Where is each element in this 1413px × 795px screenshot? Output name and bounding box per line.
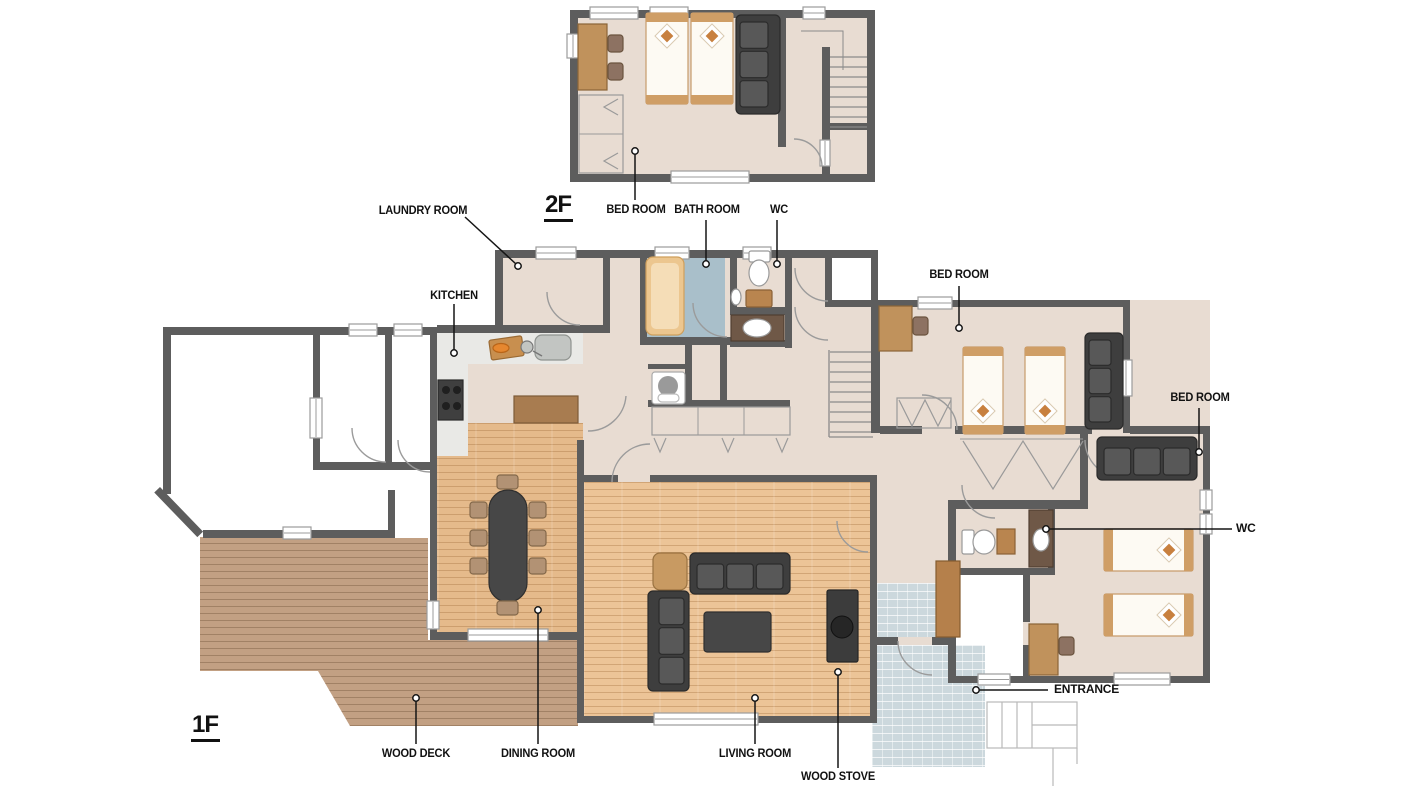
wc-cabinet	[997, 529, 1015, 554]
sofa-cushion	[1089, 368, 1111, 393]
wall	[825, 250, 832, 307]
toilet-tank	[962, 530, 974, 554]
wall	[1130, 426, 1210, 434]
wall	[867, 10, 875, 182]
dining-chair	[529, 530, 546, 546]
kitchen-island	[514, 396, 578, 423]
leader-dot	[703, 261, 709, 267]
door-arc	[837, 521, 868, 552]
wall	[873, 637, 898, 645]
cooktop-burner	[442, 402, 450, 410]
leader-line	[465, 217, 516, 264]
sofa-cushion	[756, 564, 783, 589]
wall	[577, 440, 584, 723]
door-arc	[922, 395, 957, 430]
leader-dot	[956, 325, 962, 331]
wall	[720, 345, 727, 403]
wall-diagonal	[154, 487, 203, 537]
bed-footboard	[1184, 529, 1193, 571]
sofa-cushion	[659, 598, 684, 625]
pan	[521, 341, 533, 353]
wall	[430, 327, 437, 640]
wall	[603, 250, 610, 332]
ottoman	[653, 553, 687, 590]
wall	[648, 364, 688, 369]
sofa-cushion	[1134, 448, 1161, 475]
sofa-cushion	[1089, 397, 1111, 422]
door-arc	[898, 641, 932, 675]
sofa-cushion	[1104, 448, 1131, 475]
wall	[822, 166, 830, 176]
closet-hang-marks	[604, 99, 618, 115]
leader-dot	[835, 669, 841, 675]
leader-dot	[632, 148, 638, 154]
desk	[578, 24, 607, 90]
bed-headboard	[691, 13, 733, 22]
label-living-room: LIVING ROOM	[719, 746, 791, 760]
bed-headboard	[1025, 347, 1065, 356]
wall	[437, 325, 610, 333]
bed-footboard	[1184, 594, 1193, 636]
closet-hang-marks	[899, 400, 951, 426]
door-arc	[588, 396, 626, 431]
floor-plan: 2F 1F LAUNDRY ROOM KITCHEN BED ROOM BATH…	[0, 0, 1413, 795]
dining-chair	[497, 475, 518, 489]
cooktop-burner	[453, 386, 461, 394]
toilet-bowl	[749, 260, 769, 286]
wall	[313, 462, 437, 470]
chair	[1059, 637, 1074, 655]
bed-headboard	[963, 347, 1003, 356]
wall	[495, 250, 503, 332]
door-arc	[794, 139, 822, 166]
wall	[163, 327, 171, 494]
label-dining-room: DINING ROOM	[501, 746, 575, 760]
dining-chair	[529, 502, 546, 518]
leader-dot	[515, 263, 521, 269]
cooktop-burner	[442, 386, 450, 394]
cooktop	[438, 380, 463, 420]
label-bedroom-2f: BED ROOM	[606, 202, 665, 216]
leader-dot	[973, 687, 979, 693]
label-bedroom-east: BED ROOM	[1170, 390, 1229, 404]
sofa-cushion	[740, 51, 768, 77]
wall	[645, 337, 737, 345]
dining-chair	[470, 530, 487, 546]
bed-headboard	[1104, 594, 1113, 636]
leader-dot	[1196, 449, 1202, 455]
label-floor-2f: 2F	[544, 191, 573, 222]
wall	[730, 307, 792, 315]
desk	[1029, 624, 1058, 675]
leader-dot	[451, 350, 457, 356]
sofa-cushion	[659, 628, 684, 655]
washing-machine-tray	[658, 394, 679, 402]
wall	[650, 475, 877, 482]
closet-outline	[652, 407, 790, 435]
cooktop-burner	[453, 402, 461, 410]
leader-dot	[774, 261, 780, 267]
label-wc-east: WC	[1236, 521, 1256, 535]
leader-dot	[413, 695, 419, 701]
wall	[880, 426, 922, 434]
wall	[932, 637, 956, 645]
dining-chair	[470, 502, 487, 518]
door-arc	[795, 268, 828, 301]
leader-dot	[1043, 526, 1049, 532]
bed-footboard	[1025, 425, 1065, 434]
wall	[685, 345, 692, 403]
dining-chair	[529, 558, 546, 574]
wall	[388, 490, 395, 538]
chair	[608, 63, 623, 80]
closet-hang-marks	[963, 441, 1083, 489]
wc-sink	[731, 289, 741, 305]
leader-dot	[535, 607, 541, 613]
door-arc	[795, 307, 828, 340]
label-floor-1f: 1F	[191, 711, 220, 742]
wc-counter	[746, 290, 772, 307]
wall	[1023, 575, 1030, 622]
sofa-cushion	[659, 657, 684, 684]
basin-sink	[743, 319, 771, 337]
fish	[493, 344, 509, 353]
label-bath-room: BATH ROOM	[674, 202, 740, 216]
closet-hang-marks	[776, 438, 788, 452]
wall	[1203, 426, 1210, 683]
shoe-cabinet	[936, 561, 960, 637]
closet-hang-marks	[722, 438, 734, 452]
sofa-cushion	[740, 81, 768, 107]
door-arc	[547, 292, 580, 325]
label-wood-stove: WOOD STOVE	[801, 769, 875, 783]
label-wc-north: WC	[770, 202, 788, 216]
label-bedroom-north: BED ROOM	[929, 267, 988, 281]
sofa-cushion	[697, 564, 724, 589]
sofa-cushion	[1089, 340, 1111, 365]
wall	[871, 250, 878, 307]
wood-stove-door	[831, 616, 853, 638]
chair	[913, 317, 928, 335]
sofa-cushion	[740, 22, 768, 48]
chair	[608, 35, 623, 52]
bed-footboard	[963, 425, 1003, 434]
bed-headboard	[1104, 529, 1113, 571]
desk	[879, 306, 912, 351]
dining-chair	[497, 601, 518, 615]
label-entrance: ENTRANCE	[1054, 682, 1119, 696]
door-arc	[693, 303, 727, 337]
kitchen-sink	[535, 335, 571, 360]
closet-hang-marks	[654, 438, 666, 452]
wall	[785, 250, 792, 348]
sofa-cushion	[727, 564, 754, 589]
sofa-cushion	[1163, 448, 1190, 475]
label-laundry-room: LAUNDRY ROOM	[379, 203, 468, 217]
wall	[870, 475, 877, 723]
leader-dot	[752, 695, 758, 701]
label-kitchen: KITCHEN	[430, 288, 478, 302]
coffee-table	[704, 612, 771, 652]
dining-table	[489, 490, 527, 602]
closet-hang-marks	[604, 153, 618, 169]
toilet-bowl	[973, 530, 995, 554]
bathtub-inner	[651, 263, 679, 329]
wall	[955, 568, 1055, 575]
bed-headboard	[646, 13, 688, 22]
door-arc	[352, 428, 386, 462]
dining-chair	[470, 558, 487, 574]
wall	[385, 327, 392, 470]
bed-footboard	[691, 95, 733, 104]
bed-footboard	[646, 95, 688, 104]
washing-machine-drum	[658, 376, 678, 396]
label-wood-deck: WOOD DECK	[382, 746, 450, 760]
